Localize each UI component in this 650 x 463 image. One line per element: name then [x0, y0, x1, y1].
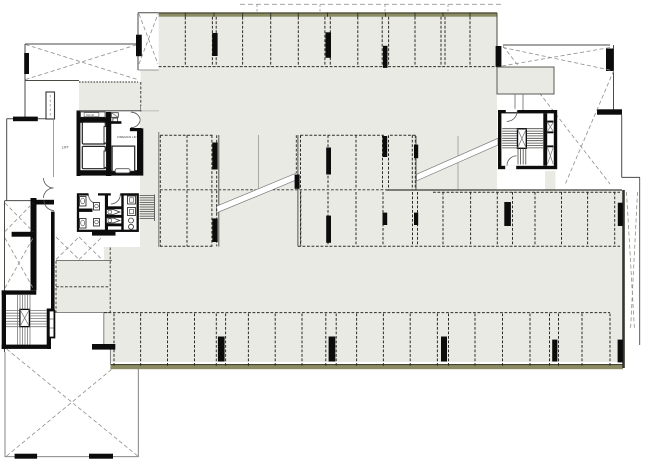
svg-text:LIFT: LIFT	[62, 145, 69, 149]
svg-text:FIREMAN LIFT: FIREMAN LIFT	[117, 135, 138, 139]
svg-text:OH HC: OH HC	[86, 113, 94, 117]
